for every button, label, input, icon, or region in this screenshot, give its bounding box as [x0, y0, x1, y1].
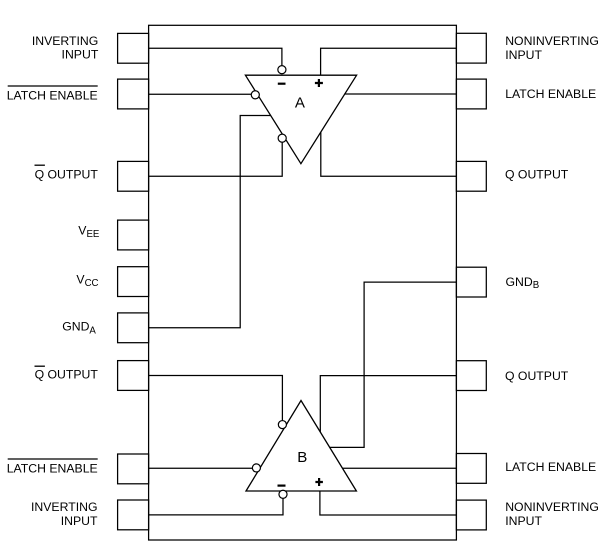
svg-text:INPUT: INPUT — [505, 514, 542, 528]
svg-text:A: A — [295, 95, 306, 112]
svg-text:NONINVERTING: NONINVERTING — [505, 34, 599, 48]
svg-text:LATCH ENABLE: LATCH ENABLE — [7, 89, 98, 103]
svg-text:VCC: VCC — [76, 272, 98, 288]
svg-text:INPUT: INPUT — [505, 48, 542, 62]
svg-text:Q OUTPUT: Q OUTPUT — [505, 369, 569, 383]
svg-text:Q OUTPUT: Q OUTPUT — [35, 368, 99, 382]
svg-text:INVERTING: INVERTING — [32, 34, 98, 48]
svg-text:NONINVERTING: NONINVERTING — [505, 500, 599, 514]
svg-text:INPUT: INPUT — [61, 514, 98, 528]
svg-text:LATCH ENABLE: LATCH ENABLE — [7, 462, 98, 476]
svg-text:INPUT: INPUT — [62, 48, 99, 62]
svg-text:GNDB: GNDB — [506, 275, 540, 291]
svg-text:INVERTING: INVERTING — [31, 500, 97, 514]
svg-text:Q OUTPUT: Q OUTPUT — [505, 168, 569, 182]
svg-text:LATCH ENABLE: LATCH ENABLE — [505, 87, 596, 101]
svg-text:VEE: VEE — [78, 224, 100, 240]
svg-text:B: B — [297, 449, 307, 466]
svg-text:GNDA: GNDA — [62, 320, 96, 337]
svg-text:LATCH ENABLE: LATCH ENABLE — [505, 460, 596, 474]
svg-text:Q OUTPUT: Q OUTPUT — [35, 167, 99, 181]
